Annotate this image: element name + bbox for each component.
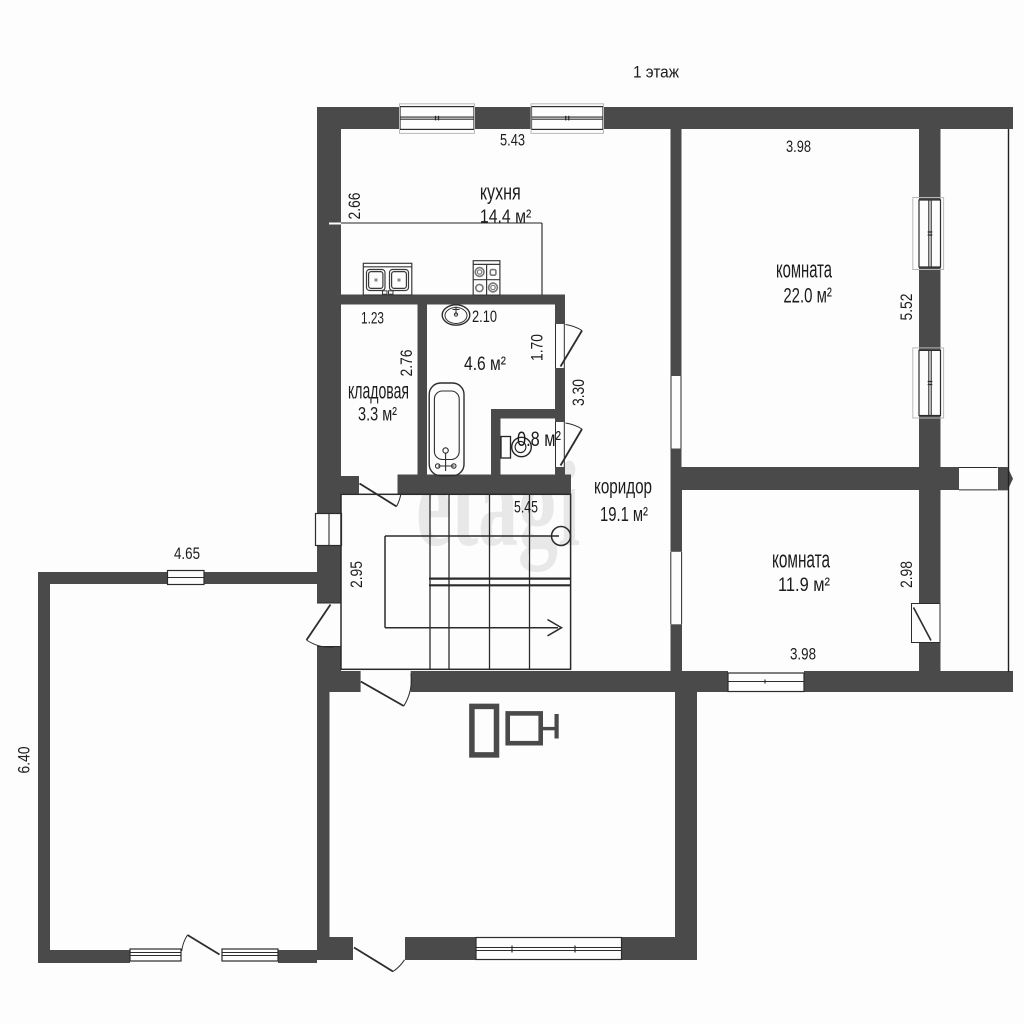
svg-text:22.0 м²: 22.0 м² xyxy=(783,284,831,307)
svg-text:11.9 м²: 11.9 м² xyxy=(778,574,830,596)
svg-text:19.1 м²: 19.1 м² xyxy=(600,503,648,526)
svg-text:2.98: 2.98 xyxy=(898,561,917,588)
svg-text:1.70: 1.70 xyxy=(528,334,547,361)
svg-text:комната: комната xyxy=(776,257,833,283)
svg-text:5.45: 5.45 xyxy=(514,499,538,517)
svg-text:2.76: 2.76 xyxy=(398,349,417,376)
svg-text:3.98: 3.98 xyxy=(790,645,816,664)
svg-text:3.30: 3.30 xyxy=(570,379,589,406)
svg-text:5.43: 5.43 xyxy=(500,131,525,150)
svg-text:6.40: 6.40 xyxy=(15,746,34,773)
svg-text:4.65: 4.65 xyxy=(174,544,200,563)
svg-text:кладовая: кладовая xyxy=(348,379,409,404)
svg-text:1.23: 1.23 xyxy=(361,310,384,329)
svg-text:1 этаж: 1 этаж xyxy=(633,63,679,82)
svg-text:коридор: коридор xyxy=(594,474,652,498)
svg-text:кухня: кухня xyxy=(480,181,521,205)
svg-text:2.95: 2.95 xyxy=(348,561,367,588)
svg-text:2.66: 2.66 xyxy=(346,192,365,219)
svg-text:3.3 м²: 3.3 м² xyxy=(358,402,397,425)
svg-text:5.52: 5.52 xyxy=(898,293,917,320)
svg-text:2.10: 2.10 xyxy=(472,307,497,326)
svg-text:14.4 м²: 14.4 м² xyxy=(480,205,532,226)
svg-text:4.6 м²: 4.6 м² xyxy=(464,352,506,374)
svg-text:0.8 м²: 0.8 м² xyxy=(517,427,561,450)
svg-text:комната: комната xyxy=(772,547,831,573)
svg-text:3.98: 3.98 xyxy=(786,137,811,156)
